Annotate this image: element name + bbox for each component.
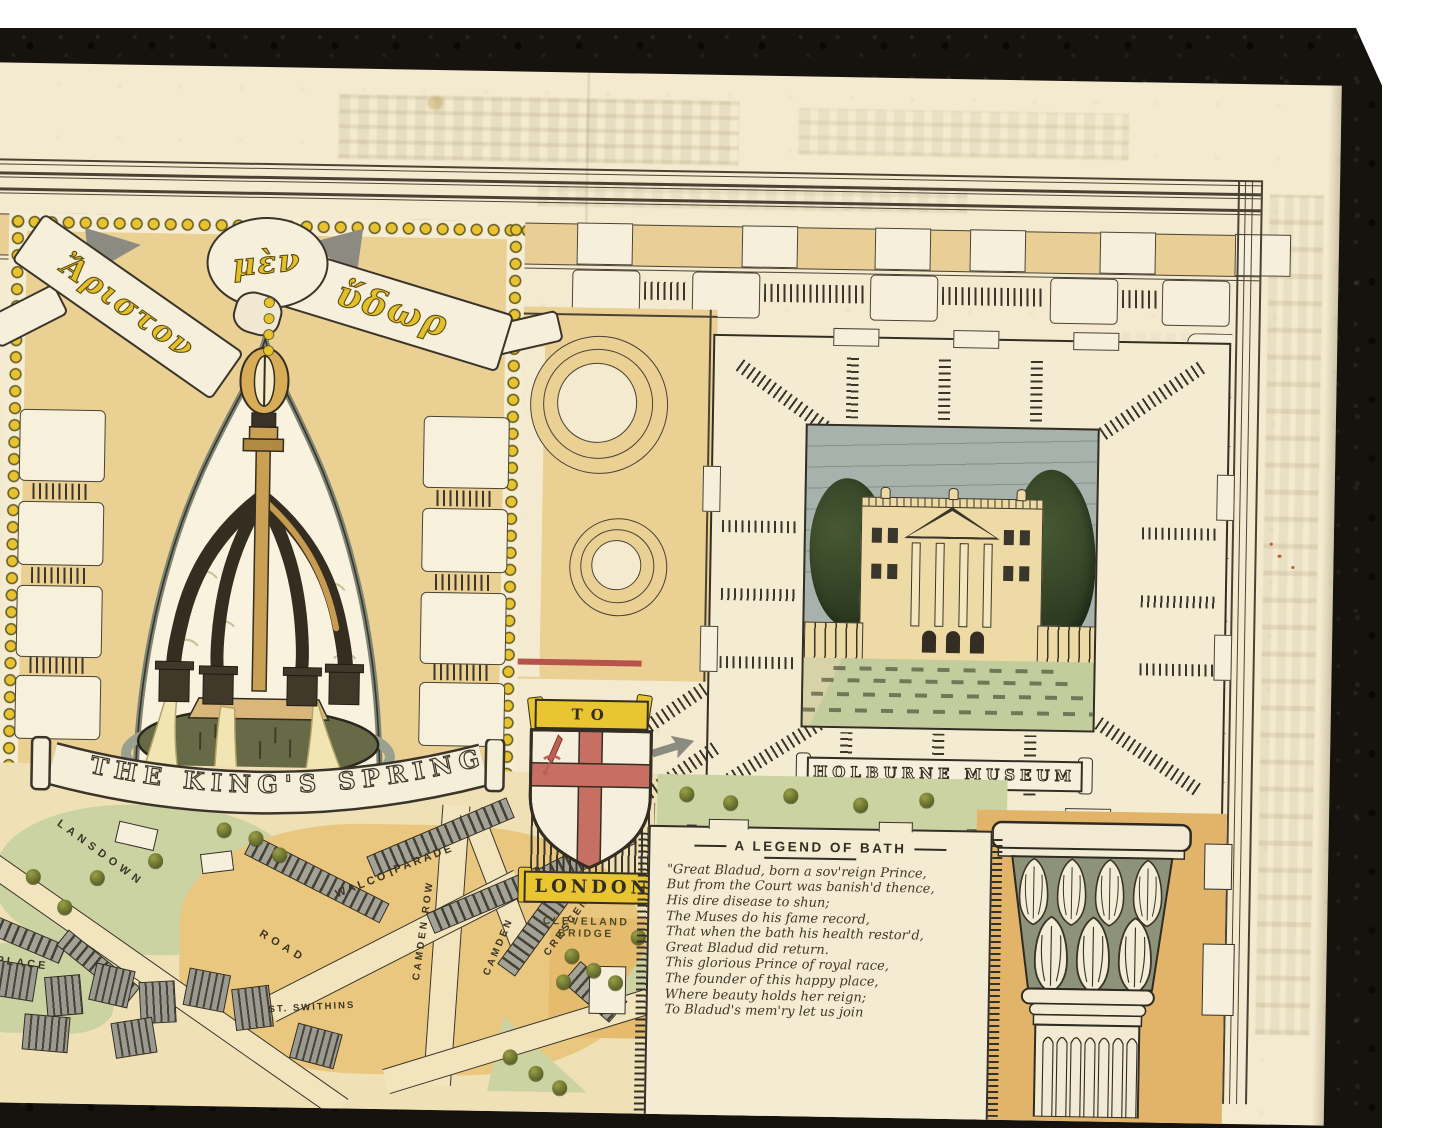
crenel-tab [699, 626, 718, 672]
roof-urn [949, 488, 959, 500]
plan-room [870, 275, 939, 322]
portico-column [958, 543, 968, 627]
window [887, 564, 897, 579]
plan-room [1162, 280, 1231, 327]
finial-line [264, 355, 265, 407]
garden-circle [568, 517, 668, 617]
bleed-text-ghost [338, 94, 739, 165]
portico-column [934, 543, 944, 627]
colonnade-wing [804, 621, 864, 660]
window [871, 564, 881, 579]
border-rule [1236, 180, 1253, 1104]
paper-stain [427, 96, 443, 110]
window [1004, 530, 1014, 545]
garden-circle [591, 540, 642, 591]
column-shaft [1034, 1025, 1140, 1119]
lawn-hatch [821, 678, 1075, 686]
roof-urn [1016, 489, 1026, 501]
title-dash [914, 848, 946, 851]
crenel-tab [702, 466, 721, 512]
plan-room [1050, 278, 1119, 325]
portico-column [982, 544, 992, 628]
building-block [110, 1017, 157, 1059]
window [1003, 566, 1013, 581]
corinthian-capital [980, 816, 1201, 1120]
window [872, 528, 882, 543]
plan-room [1202, 943, 1235, 1016]
crenel-tab [577, 222, 634, 265]
frame-ray [1139, 663, 1213, 676]
column-capital [249, 427, 277, 439]
crenel-tab [1099, 232, 1156, 275]
building-block [183, 967, 231, 1012]
building-block [22, 1013, 71, 1053]
lawn-hatch [811, 692, 1085, 701]
bleed-text-ghost [799, 108, 1130, 160]
map-paper: HOLBURNE MUSEUM [0, 62, 1342, 1126]
hatch-connector [1122, 290, 1158, 309]
lawn-hatch [834, 666, 1064, 674]
entrance-arch [946, 631, 960, 653]
holburne-museum-panel: HOLBURNE MUSEUM [705, 334, 1231, 823]
frame-ray [721, 588, 795, 601]
crenel-tab [953, 330, 999, 349]
hatch-connector [942, 287, 1044, 307]
frame-ray [1094, 717, 1201, 796]
banner-scroll-end [31, 737, 50, 789]
frame-ray [1099, 361, 1206, 440]
frame-ray [720, 656, 794, 669]
frame-ray [1141, 595, 1215, 608]
roof-urn [881, 487, 891, 499]
garden-circle [580, 529, 655, 604]
crenel-tab [969, 229, 1026, 272]
crenel-tab [1073, 332, 1119, 351]
hatch-connector [764, 284, 864, 304]
red-speck [1270, 543, 1273, 546]
crenel-tab [742, 225, 799, 268]
museum-building [859, 496, 1044, 663]
museum-picture [801, 423, 1100, 732]
window [1019, 566, 1029, 581]
entrance-arch [970, 631, 984, 653]
crenel-tab [1216, 475, 1235, 521]
pediment [908, 510, 996, 538]
lawn [803, 657, 1094, 730]
hatch-connector [644, 282, 688, 301]
title-dash [694, 844, 726, 847]
window [1020, 530, 1030, 545]
crenel-tab [875, 228, 932, 271]
window [888, 528, 898, 543]
garden-circle [556, 362, 637, 443]
crenel-tab [833, 328, 879, 347]
frame-ray [938, 356, 951, 420]
column-capital [243, 439, 283, 452]
crenel-tab [1213, 635, 1232, 681]
red-speck [1291, 566, 1294, 569]
kings-spring-banner: THE KING'S SPRING [27, 731, 509, 831]
frame-ray [1142, 527, 1216, 540]
garden-circle [529, 335, 669, 475]
greek-text-center: μὲν [232, 242, 304, 284]
to-banner: TO [534, 699, 649, 731]
frame-ray [846, 354, 859, 418]
lawn-hatch [803, 707, 1093, 716]
plan-room [1204, 843, 1233, 889]
poem-title-row: A LEGEND OF BATH [650, 837, 990, 858]
portico-column [910, 542, 920, 626]
city-of-london-shield [526, 727, 655, 877]
building-block [44, 974, 83, 1017]
garden-circle [542, 348, 654, 460]
red-speck [1278, 555, 1282, 558]
abacus [992, 822, 1190, 851]
scroll-notch [879, 822, 913, 833]
building-block [200, 850, 234, 874]
poem-title: A LEGEND OF BATH [734, 838, 906, 856]
title-underline [764, 857, 856, 860]
garden-plan [517, 307, 717, 682]
frame-ray [1030, 357, 1043, 421]
banner-scroll-end [485, 739, 504, 791]
scroll-notch [709, 819, 749, 830]
colonnade-wing [1037, 626, 1097, 665]
capital-backdrop [972, 810, 1227, 1124]
entrance-arch [922, 631, 936, 653]
legend-poem-panel: A LEGEND OF BATH "Great Bladud, born a s… [644, 825, 993, 1125]
bleed-text-ghost [1255, 195, 1324, 1036]
frame-ray [722, 520, 796, 533]
